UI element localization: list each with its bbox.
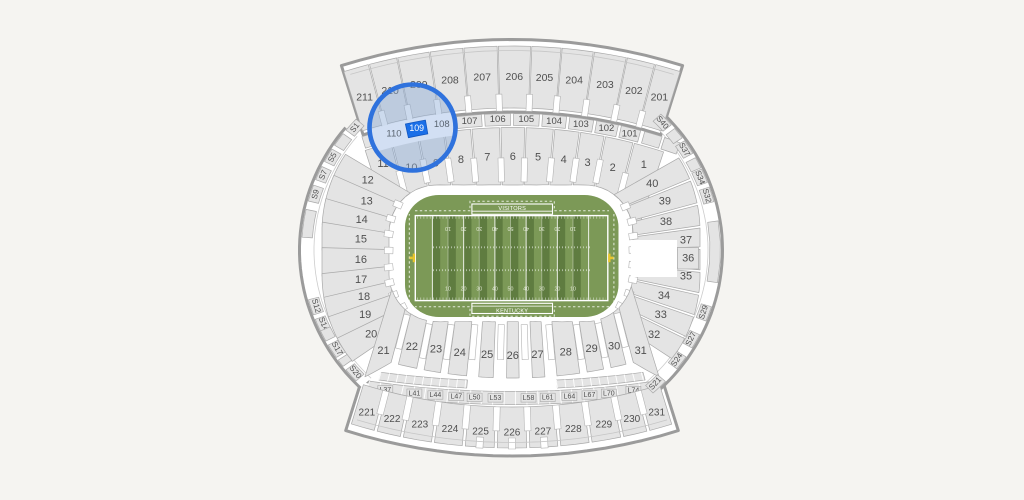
svg-text:31: 31 xyxy=(635,345,647,357)
svg-text:202: 202 xyxy=(625,85,643,97)
svg-text:105: 105 xyxy=(518,114,534,125)
svg-text:206: 206 xyxy=(506,71,524,83)
svg-text:20: 20 xyxy=(461,225,467,231)
svg-text:L58: L58 xyxy=(523,395,535,402)
svg-text:L67: L67 xyxy=(584,392,596,399)
svg-text:KENTUCKY: KENTUCKY xyxy=(496,308,528,314)
svg-text:40: 40 xyxy=(523,225,529,231)
svg-text:10: 10 xyxy=(445,287,451,293)
svg-text:5: 5 xyxy=(535,152,541,164)
svg-text:222: 222 xyxy=(384,414,401,425)
svg-text:40: 40 xyxy=(523,287,529,293)
svg-text:27: 27 xyxy=(531,349,543,361)
svg-text:20: 20 xyxy=(365,328,377,340)
svg-text:13: 13 xyxy=(361,195,373,207)
svg-text:226: 226 xyxy=(504,428,521,439)
svg-text:16: 16 xyxy=(355,254,367,266)
svg-text:101: 101 xyxy=(622,128,638,139)
svg-text:50: 50 xyxy=(508,225,514,231)
svg-text:24: 24 xyxy=(454,347,466,359)
svg-text:L50: L50 xyxy=(469,394,481,401)
svg-text:30: 30 xyxy=(476,225,482,231)
svg-text:29: 29 xyxy=(585,343,597,355)
svg-text:231: 231 xyxy=(648,408,665,419)
svg-text:201: 201 xyxy=(651,92,669,104)
svg-text:30: 30 xyxy=(476,287,482,293)
svg-text:110: 110 xyxy=(386,128,401,139)
svg-text:23: 23 xyxy=(430,344,442,356)
svg-text:1: 1 xyxy=(641,159,647,171)
svg-text:10: 10 xyxy=(445,225,451,231)
svg-text:30: 30 xyxy=(539,287,545,293)
svg-text:108: 108 xyxy=(434,119,450,130)
svg-text:L41: L41 xyxy=(409,390,421,397)
svg-text:35: 35 xyxy=(680,270,692,282)
svg-text:26: 26 xyxy=(507,350,519,362)
svg-text:L53: L53 xyxy=(490,395,502,402)
svg-text:224: 224 xyxy=(442,424,459,435)
svg-text:L70: L70 xyxy=(603,390,615,397)
svg-text:36: 36 xyxy=(682,253,694,265)
svg-text:15: 15 xyxy=(355,234,367,246)
svg-text:20: 20 xyxy=(461,287,467,293)
svg-text:37: 37 xyxy=(680,235,692,247)
svg-text:7: 7 xyxy=(484,152,490,164)
svg-text:30: 30 xyxy=(539,225,545,231)
svg-text:221: 221 xyxy=(359,408,376,419)
svg-text:3: 3 xyxy=(584,157,590,169)
svg-text:L64: L64 xyxy=(564,393,576,400)
svg-text:203: 203 xyxy=(596,79,614,91)
svg-text:VISITORS: VISITORS xyxy=(498,206,526,212)
svg-text:22: 22 xyxy=(406,341,418,353)
svg-text:204: 204 xyxy=(565,74,583,86)
svg-text:10: 10 xyxy=(570,287,576,293)
svg-text:230: 230 xyxy=(624,414,641,425)
svg-text:12: 12 xyxy=(362,174,374,186)
svg-text:19: 19 xyxy=(359,309,371,321)
svg-text:208: 208 xyxy=(441,74,459,86)
svg-text:205: 205 xyxy=(536,72,554,84)
svg-text:102: 102 xyxy=(598,123,614,134)
svg-text:L44: L44 xyxy=(430,392,442,399)
svg-text:10: 10 xyxy=(570,225,576,231)
svg-text:4: 4 xyxy=(561,154,567,166)
svg-text:21: 21 xyxy=(377,345,389,357)
svg-text:30: 30 xyxy=(608,340,620,352)
svg-text:106: 106 xyxy=(490,114,506,125)
svg-text:227: 227 xyxy=(535,427,552,438)
svg-text:39: 39 xyxy=(659,196,671,208)
svg-text:33: 33 xyxy=(655,309,667,321)
svg-text:40: 40 xyxy=(646,178,658,190)
svg-text:18: 18 xyxy=(358,291,370,303)
svg-text:2: 2 xyxy=(610,162,616,174)
svg-text:223: 223 xyxy=(412,420,429,431)
svg-text:17: 17 xyxy=(355,274,367,286)
svg-text:38: 38 xyxy=(660,216,672,228)
svg-text:28: 28 xyxy=(560,347,572,359)
svg-text:20: 20 xyxy=(554,225,560,231)
svg-text:L61: L61 xyxy=(542,395,554,402)
svg-text:8: 8 xyxy=(458,154,464,166)
svg-text:228: 228 xyxy=(565,424,582,435)
svg-text:40: 40 xyxy=(492,225,498,231)
svg-text:103: 103 xyxy=(573,119,589,130)
svg-text:40: 40 xyxy=(492,287,498,293)
svg-text:L47: L47 xyxy=(450,394,462,401)
svg-text:207: 207 xyxy=(473,72,491,84)
svg-text:14: 14 xyxy=(356,214,368,226)
svg-text:211: 211 xyxy=(356,92,373,104)
svg-text:107: 107 xyxy=(462,116,478,127)
svg-text:32: 32 xyxy=(648,329,660,341)
svg-text:50: 50 xyxy=(508,287,514,293)
svg-text:20: 20 xyxy=(554,287,560,293)
svg-text:229: 229 xyxy=(596,420,613,431)
svg-text:34: 34 xyxy=(658,290,670,302)
svg-text:109: 109 xyxy=(409,123,424,133)
svg-text:25: 25 xyxy=(481,349,493,361)
svg-text:6: 6 xyxy=(510,151,516,163)
svg-text:225: 225 xyxy=(472,427,489,438)
svg-text:104: 104 xyxy=(546,116,562,127)
